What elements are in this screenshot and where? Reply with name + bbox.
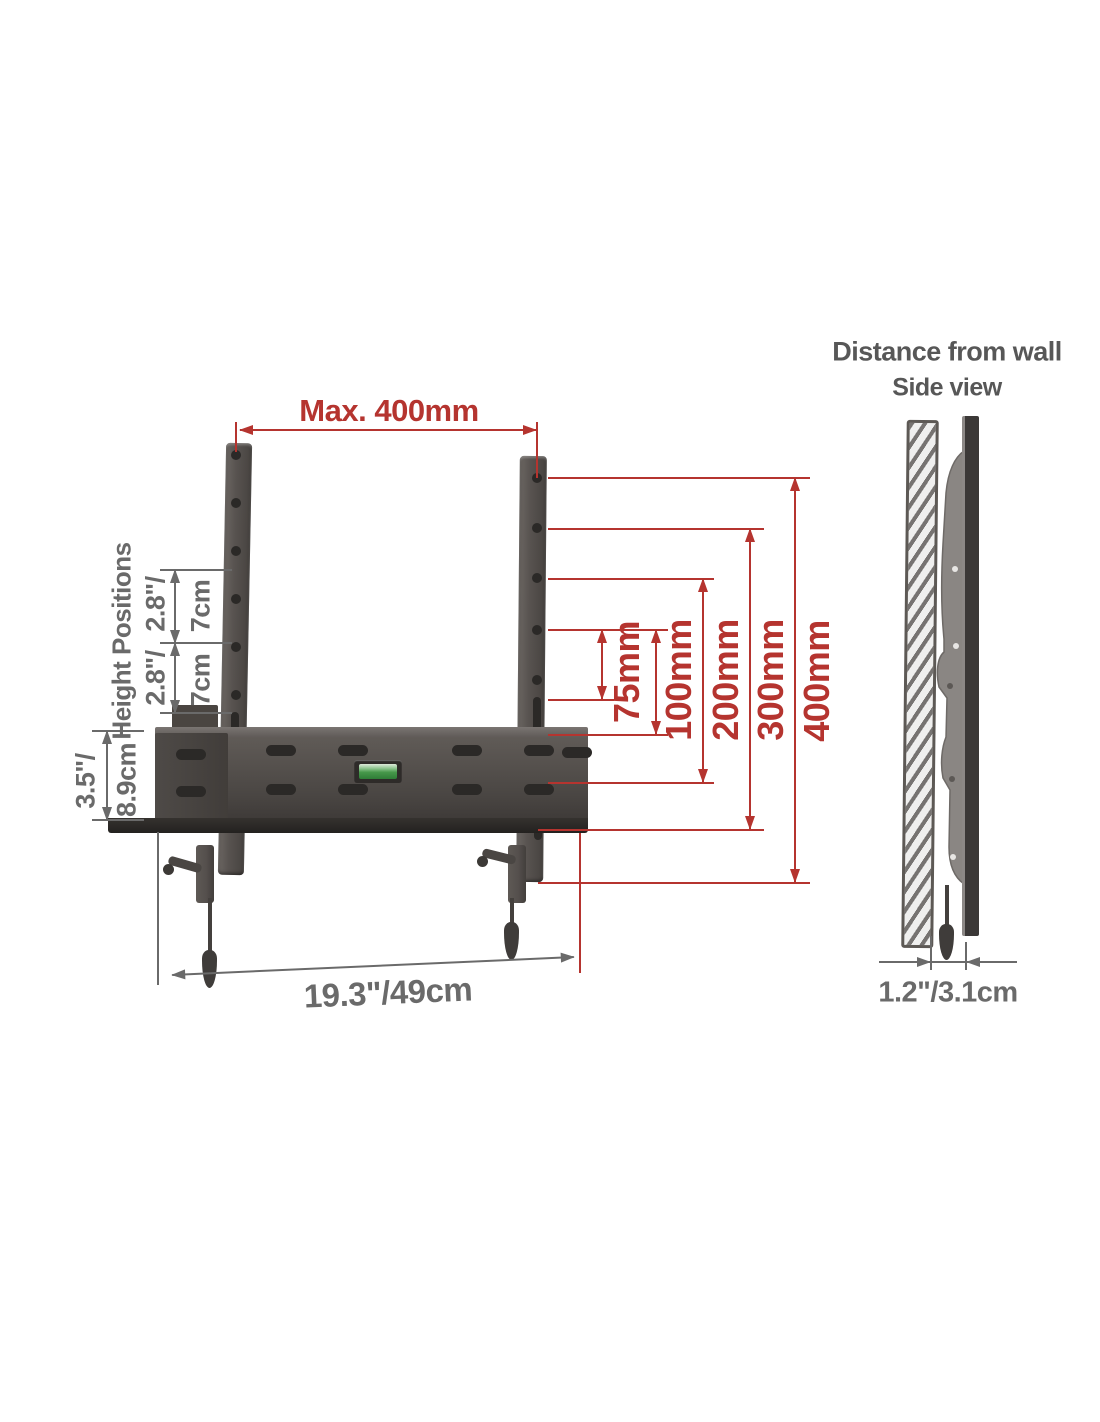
dim-arrow: [745, 528, 755, 542]
step-2-inches-label: 2.8"/: [141, 650, 172, 705]
side-tv-panel: [962, 416, 979, 936]
dim-label-100mm: 100mm: [658, 619, 700, 741]
dim-arrow: [698, 769, 708, 783]
plate-height-inches-label: 3.5"/: [71, 753, 102, 808]
dim-arrow: [966, 957, 980, 967]
ext-line-200-bottom: [548, 782, 714, 784]
side-cord-tip: [939, 924, 954, 960]
ext-line-400-top: [548, 477, 810, 479]
ext-stub-left: [235, 422, 237, 452]
right-cord-tip: [504, 922, 519, 960]
dim-arrow: [698, 578, 708, 592]
base-width-label: 19.3"/49cm: [303, 970, 473, 1015]
left-cap-slots: [176, 749, 206, 760]
side-view-title: Distance from wall: [832, 337, 1062, 368]
dim-line-75mm: [601, 630, 603, 699]
dim-arrow: [239, 425, 253, 435]
dim-line-100mm: [655, 630, 657, 734]
plate-slots-row-1: [266, 745, 296, 756]
max-width-label: Max. 400mm: [299, 393, 478, 429]
wall-mount-dimension-diagram: 75mm 100mm 200mm 300mm 400mm Max. 400mm …: [0, 0, 1100, 1422]
dim-label-200mm: 200mm: [705, 619, 747, 741]
dim-arrow: [171, 969, 185, 980]
dim-arrow: [170, 569, 180, 583]
dim-label-75mm: 75mm: [606, 621, 648, 723]
plate-slots-row-2: [266, 784, 296, 795]
right-lock-hook: [508, 845, 526, 903]
side-bracket-arm: [933, 449, 965, 889]
plate-height-cm-label: 8.9cm: [112, 743, 143, 817]
side-view-subtitle: Side view: [892, 374, 1001, 403]
bubble-level-vial: [359, 764, 397, 779]
dim-line-max-width: [240, 429, 536, 431]
dim-line-step-2: [174, 643, 176, 713]
dim-arrow: [790, 869, 800, 883]
step-1-cm-label: 7cm: [186, 580, 217, 633]
ext-line-100-bottom: [548, 734, 668, 736]
depth-dim-line: [879, 961, 1017, 963]
right-lock-knob: [477, 856, 488, 867]
tick-bottom: [92, 819, 144, 821]
dim-arrow: [170, 700, 180, 714]
dim-arrow: [523, 425, 537, 435]
dim-arrow: [102, 730, 112, 744]
dim-line-plate-height: [106, 731, 108, 820]
left-lock-knob: [163, 864, 174, 875]
dim-arrow: [170, 642, 180, 656]
depth-label: 1.2"/3.1cm: [878, 977, 1017, 1010]
dim-arrow: [102, 807, 112, 821]
step-2-cm-label: 7cm: [186, 654, 217, 707]
wall-plate-bottom-lip: [108, 818, 588, 833]
tick-top: [92, 730, 144, 732]
step-1-inches-label: 2.8"/: [141, 576, 172, 631]
dim-line-base-width: [172, 956, 574, 976]
left-cord-tip: [202, 950, 217, 988]
dim-arrow: [790, 477, 800, 491]
dim-label-300mm: 300mm: [750, 619, 792, 741]
ext-line-300-bottom: [538, 829, 764, 831]
ext-line-left: [157, 832, 159, 985]
dim-arrow: [917, 957, 931, 967]
dim-arrow: [561, 952, 575, 963]
left-lock-hook: [196, 845, 214, 903]
left-pull-cord: [208, 898, 212, 956]
dim-label-400mm: 400mm: [796, 620, 838, 742]
ext-line-300-top: [548, 528, 764, 530]
dim-line-200mm: [702, 579, 704, 782]
dim-arrow: [745, 816, 755, 830]
ext-line-200-top: [548, 578, 714, 580]
height-positions-label: Height Positions: [107, 542, 138, 739]
dim-line-step-1: [174, 570, 176, 643]
ext-line-right: [579, 833, 581, 973]
wall-plate-left-cap: [155, 733, 228, 823]
